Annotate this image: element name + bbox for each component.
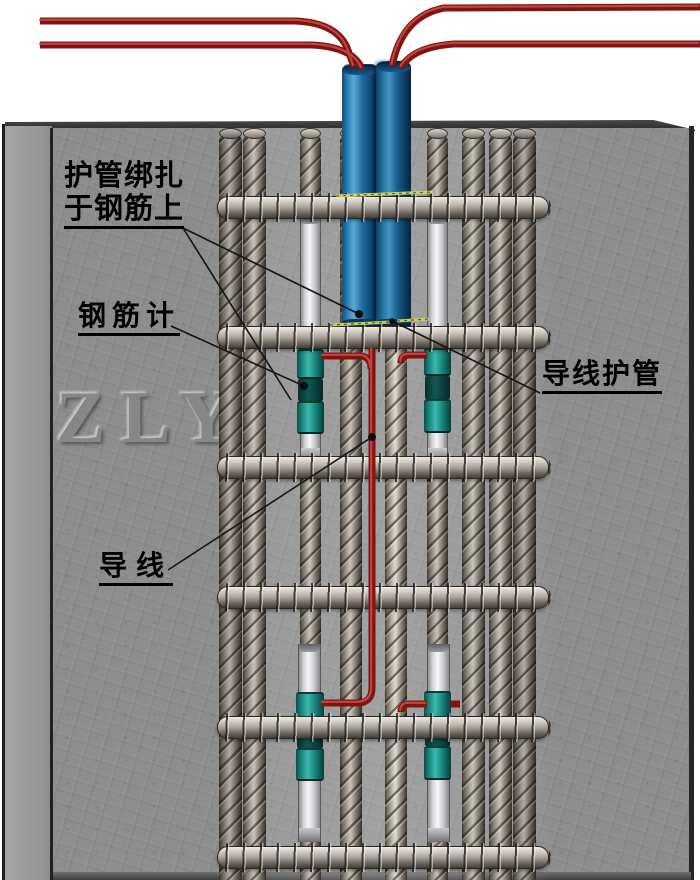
label-wire: 导线 [99,550,173,583]
hoop-wrap-rings [215,713,551,742]
rebar-vertical [513,133,536,880]
label-tube-tied-on-rebar: 护管绑扎 于钢筋上 [64,160,184,226]
diagram-canvas: ZLY [0,0,700,880]
rebar-ribs [219,133,242,880]
label-rebar-gauge: 钢筋计 [78,300,180,333]
rebar-vertical [462,133,485,880]
rebar-top-cap [489,128,512,139]
rebar-gauge-upper-right [424,348,451,433]
rebar-vertical [243,133,266,880]
hoop-wrap-rings [215,843,551,872]
rebar-vertical [489,133,512,880]
gauge-segment [424,399,451,433]
rebar-vertical [219,133,242,880]
label-line: 护管绑扎 [64,160,184,192]
spiral-hoop [217,326,549,349]
hoop-wrap-rings [215,193,551,222]
spiral-hoop [217,456,549,479]
concrete-right-edge [689,126,694,880]
rebar-ribs [243,133,266,880]
label-line-underlined: 导线护管 [542,359,662,394]
rebar-top-cap [427,128,448,139]
spiral-hoop [217,846,549,869]
label-wire-conduit: 导线护管 [542,358,662,391]
gauge-segment [424,348,451,376]
rebar-ribs [489,133,512,880]
hoop-wrap-rings [215,453,551,482]
gauge-joint [298,379,323,401]
rebar-gauge-upper-left [297,349,324,434]
rebar-top-cap [243,128,266,139]
gauge-segment [297,349,324,379]
gauge-segment [297,401,324,434]
gauge-joint [425,376,450,399]
rebar-top-cap [219,128,242,139]
concrete-left-face [5,126,52,880]
label-line-underlined: 导线 [99,551,173,586]
spiral-hoop [217,586,549,609]
label-line-underlined: 于钢筋上 [64,193,184,229]
hoop-wrap-rings [215,323,551,352]
label-line-underlined: 钢筋计 [78,301,180,336]
gauge-segment [424,746,451,780]
rebar-top-cap [513,128,536,139]
gauge-segment [296,748,324,781]
spiral-hoop [217,196,549,219]
hoop-wrap-rings [215,583,551,612]
rebar-top-cap [300,128,321,139]
rebar-top-cap [462,128,485,139]
rebar-ribs [462,133,485,880]
spiral-hoop [217,716,549,739]
rebar-ribs [513,133,536,880]
